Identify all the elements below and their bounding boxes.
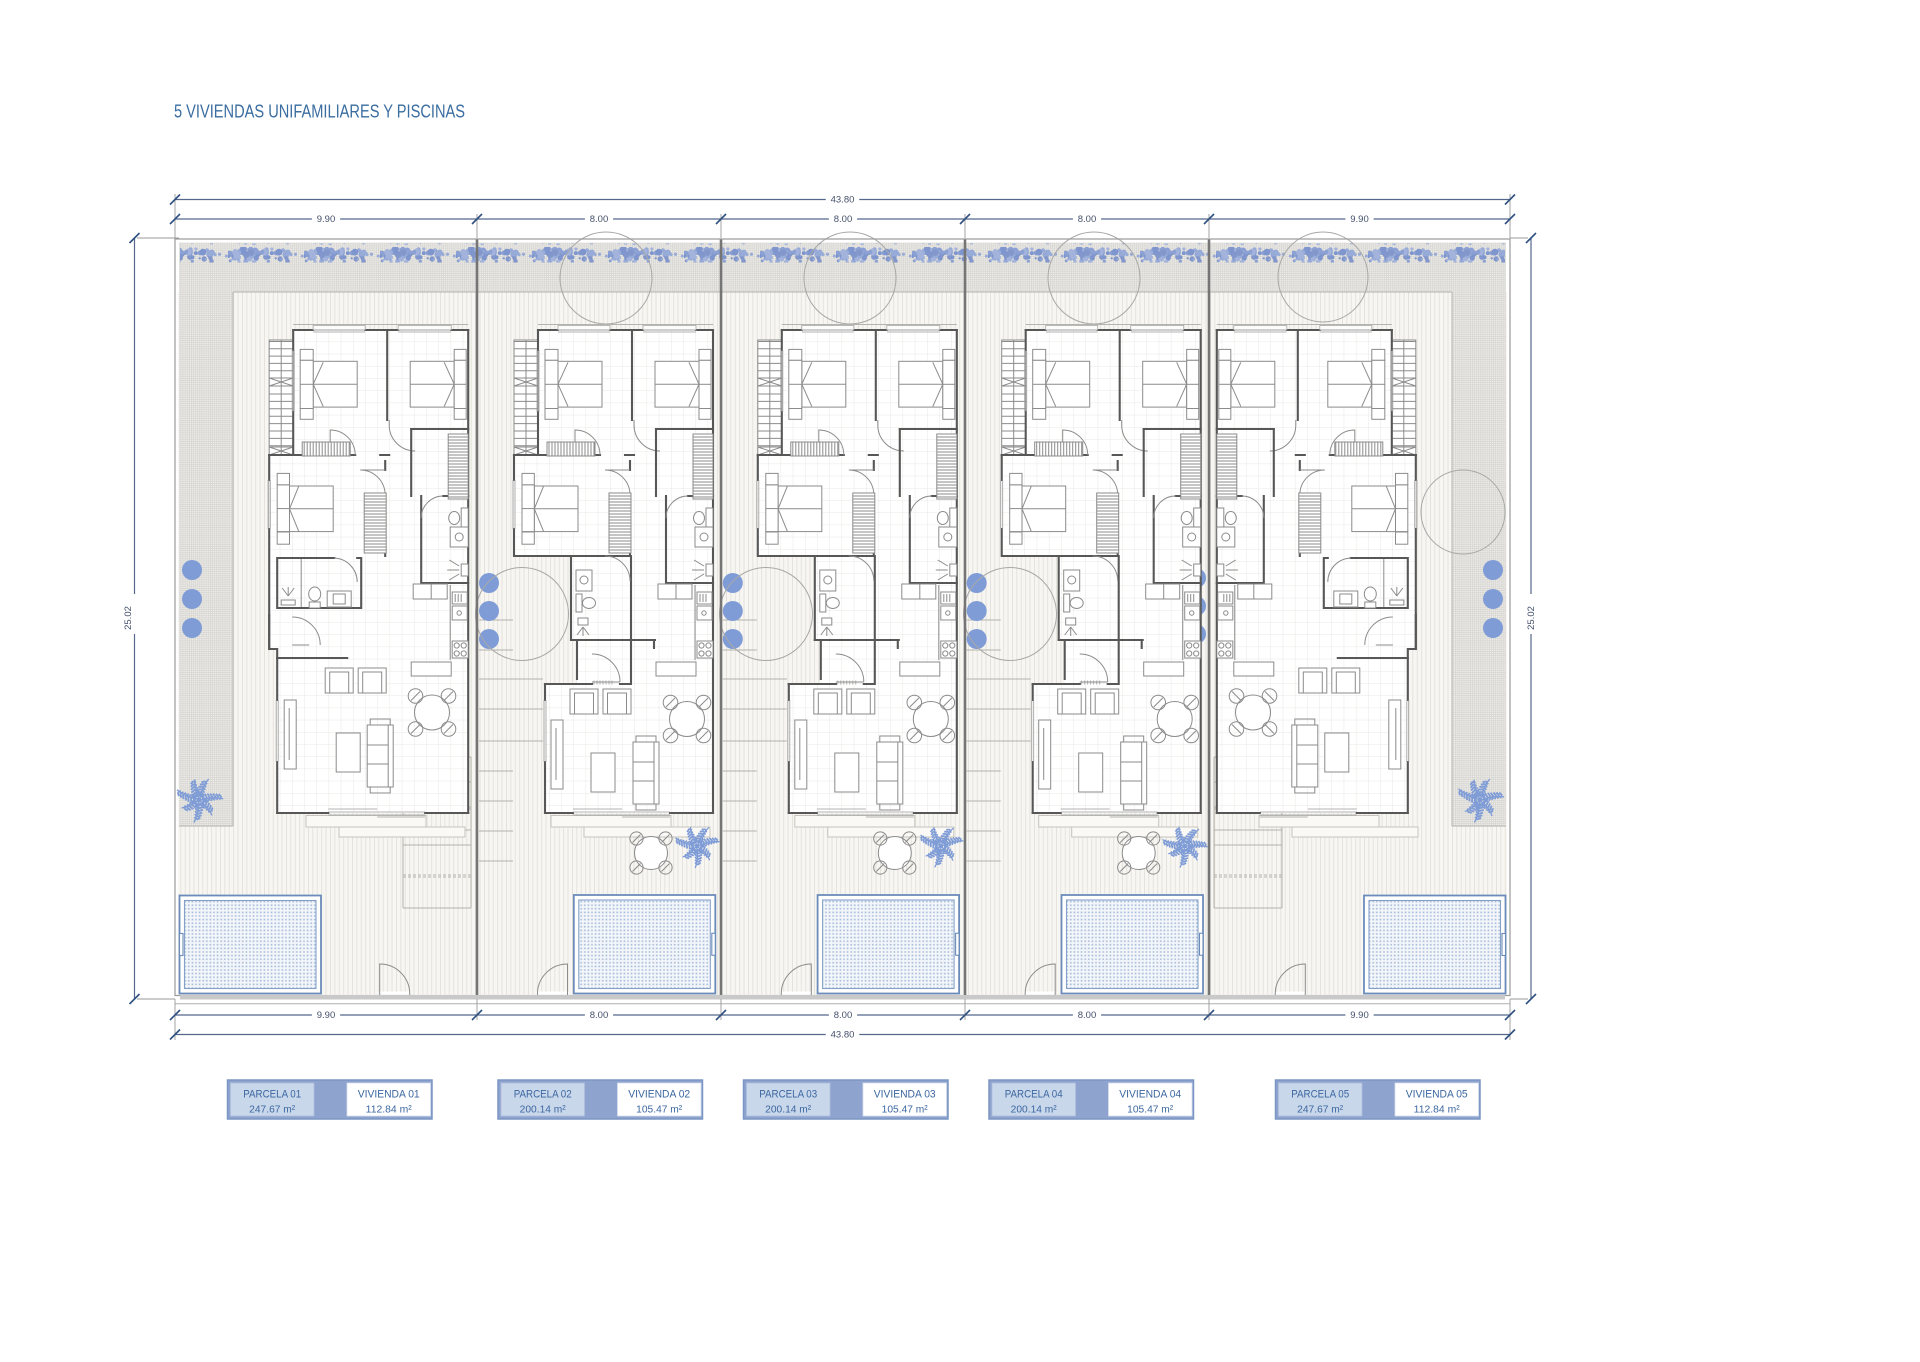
svg-text:200.14 m²: 200.14 m² (765, 1105, 812, 1116)
svg-text:247.67 m²: 247.67 m² (1297, 1105, 1344, 1116)
svg-text:8.00: 8.00 (1078, 1010, 1097, 1021)
svg-text:VIVIENDA 03: VIVIENDA 03 (874, 1089, 936, 1101)
svg-text:105.47 m²: 105.47 m² (882, 1105, 929, 1116)
svg-text:PARCELA 02: PARCELA 02 (514, 1089, 572, 1101)
svg-text:VIVIENDA 02: VIVIENDA 02 (628, 1089, 690, 1101)
svg-text:8.00: 8.00 (1078, 214, 1097, 225)
svg-text:8.00: 8.00 (590, 1010, 609, 1021)
svg-text:112.84 m²: 112.84 m² (1414, 1105, 1461, 1116)
svg-text:5 VIVIENDAS UNIFAMILIARES Y PI: 5 VIVIENDAS UNIFAMILIARES Y PISCINAS (174, 102, 465, 122)
svg-text:PARCELA 03: PARCELA 03 (759, 1089, 817, 1101)
svg-text:25.02: 25.02 (1526, 606, 1537, 630)
svg-text:9.90: 9.90 (1350, 1010, 1369, 1021)
svg-text:9.90: 9.90 (317, 1010, 336, 1021)
svg-text:112.84 m²: 112.84 m² (366, 1105, 413, 1116)
svg-text:9.90: 9.90 (317, 214, 336, 225)
svg-text:105.47 m²: 105.47 m² (636, 1105, 683, 1116)
svg-text:8.00: 8.00 (834, 1010, 853, 1021)
svg-text:200.14 m²: 200.14 m² (520, 1105, 567, 1116)
svg-text:PARCELA 01: PARCELA 01 (243, 1089, 301, 1101)
svg-text:247.67 m²: 247.67 m² (249, 1105, 296, 1116)
svg-text:9.90: 9.90 (1350, 214, 1369, 225)
svg-text:25.02: 25.02 (123, 606, 134, 630)
svg-text:VIVIENDA 04: VIVIENDA 04 (1119, 1089, 1181, 1101)
svg-text:VIVIENDA 05: VIVIENDA 05 (1406, 1089, 1468, 1101)
svg-text:200.14 m²: 200.14 m² (1011, 1105, 1058, 1116)
svg-text:PARCELA 04: PARCELA 04 (1005, 1089, 1063, 1101)
svg-text:PARCELA 05: PARCELA 05 (1291, 1089, 1349, 1101)
svg-text:8.00: 8.00 (590, 214, 609, 225)
svg-text:43.80: 43.80 (831, 1030, 855, 1041)
svg-text:8.00: 8.00 (834, 214, 853, 225)
svg-text:VIVIENDA 01: VIVIENDA 01 (358, 1089, 420, 1101)
svg-text:43.80: 43.80 (831, 195, 855, 206)
svg-text:105.47 m²: 105.47 m² (1127, 1105, 1174, 1116)
